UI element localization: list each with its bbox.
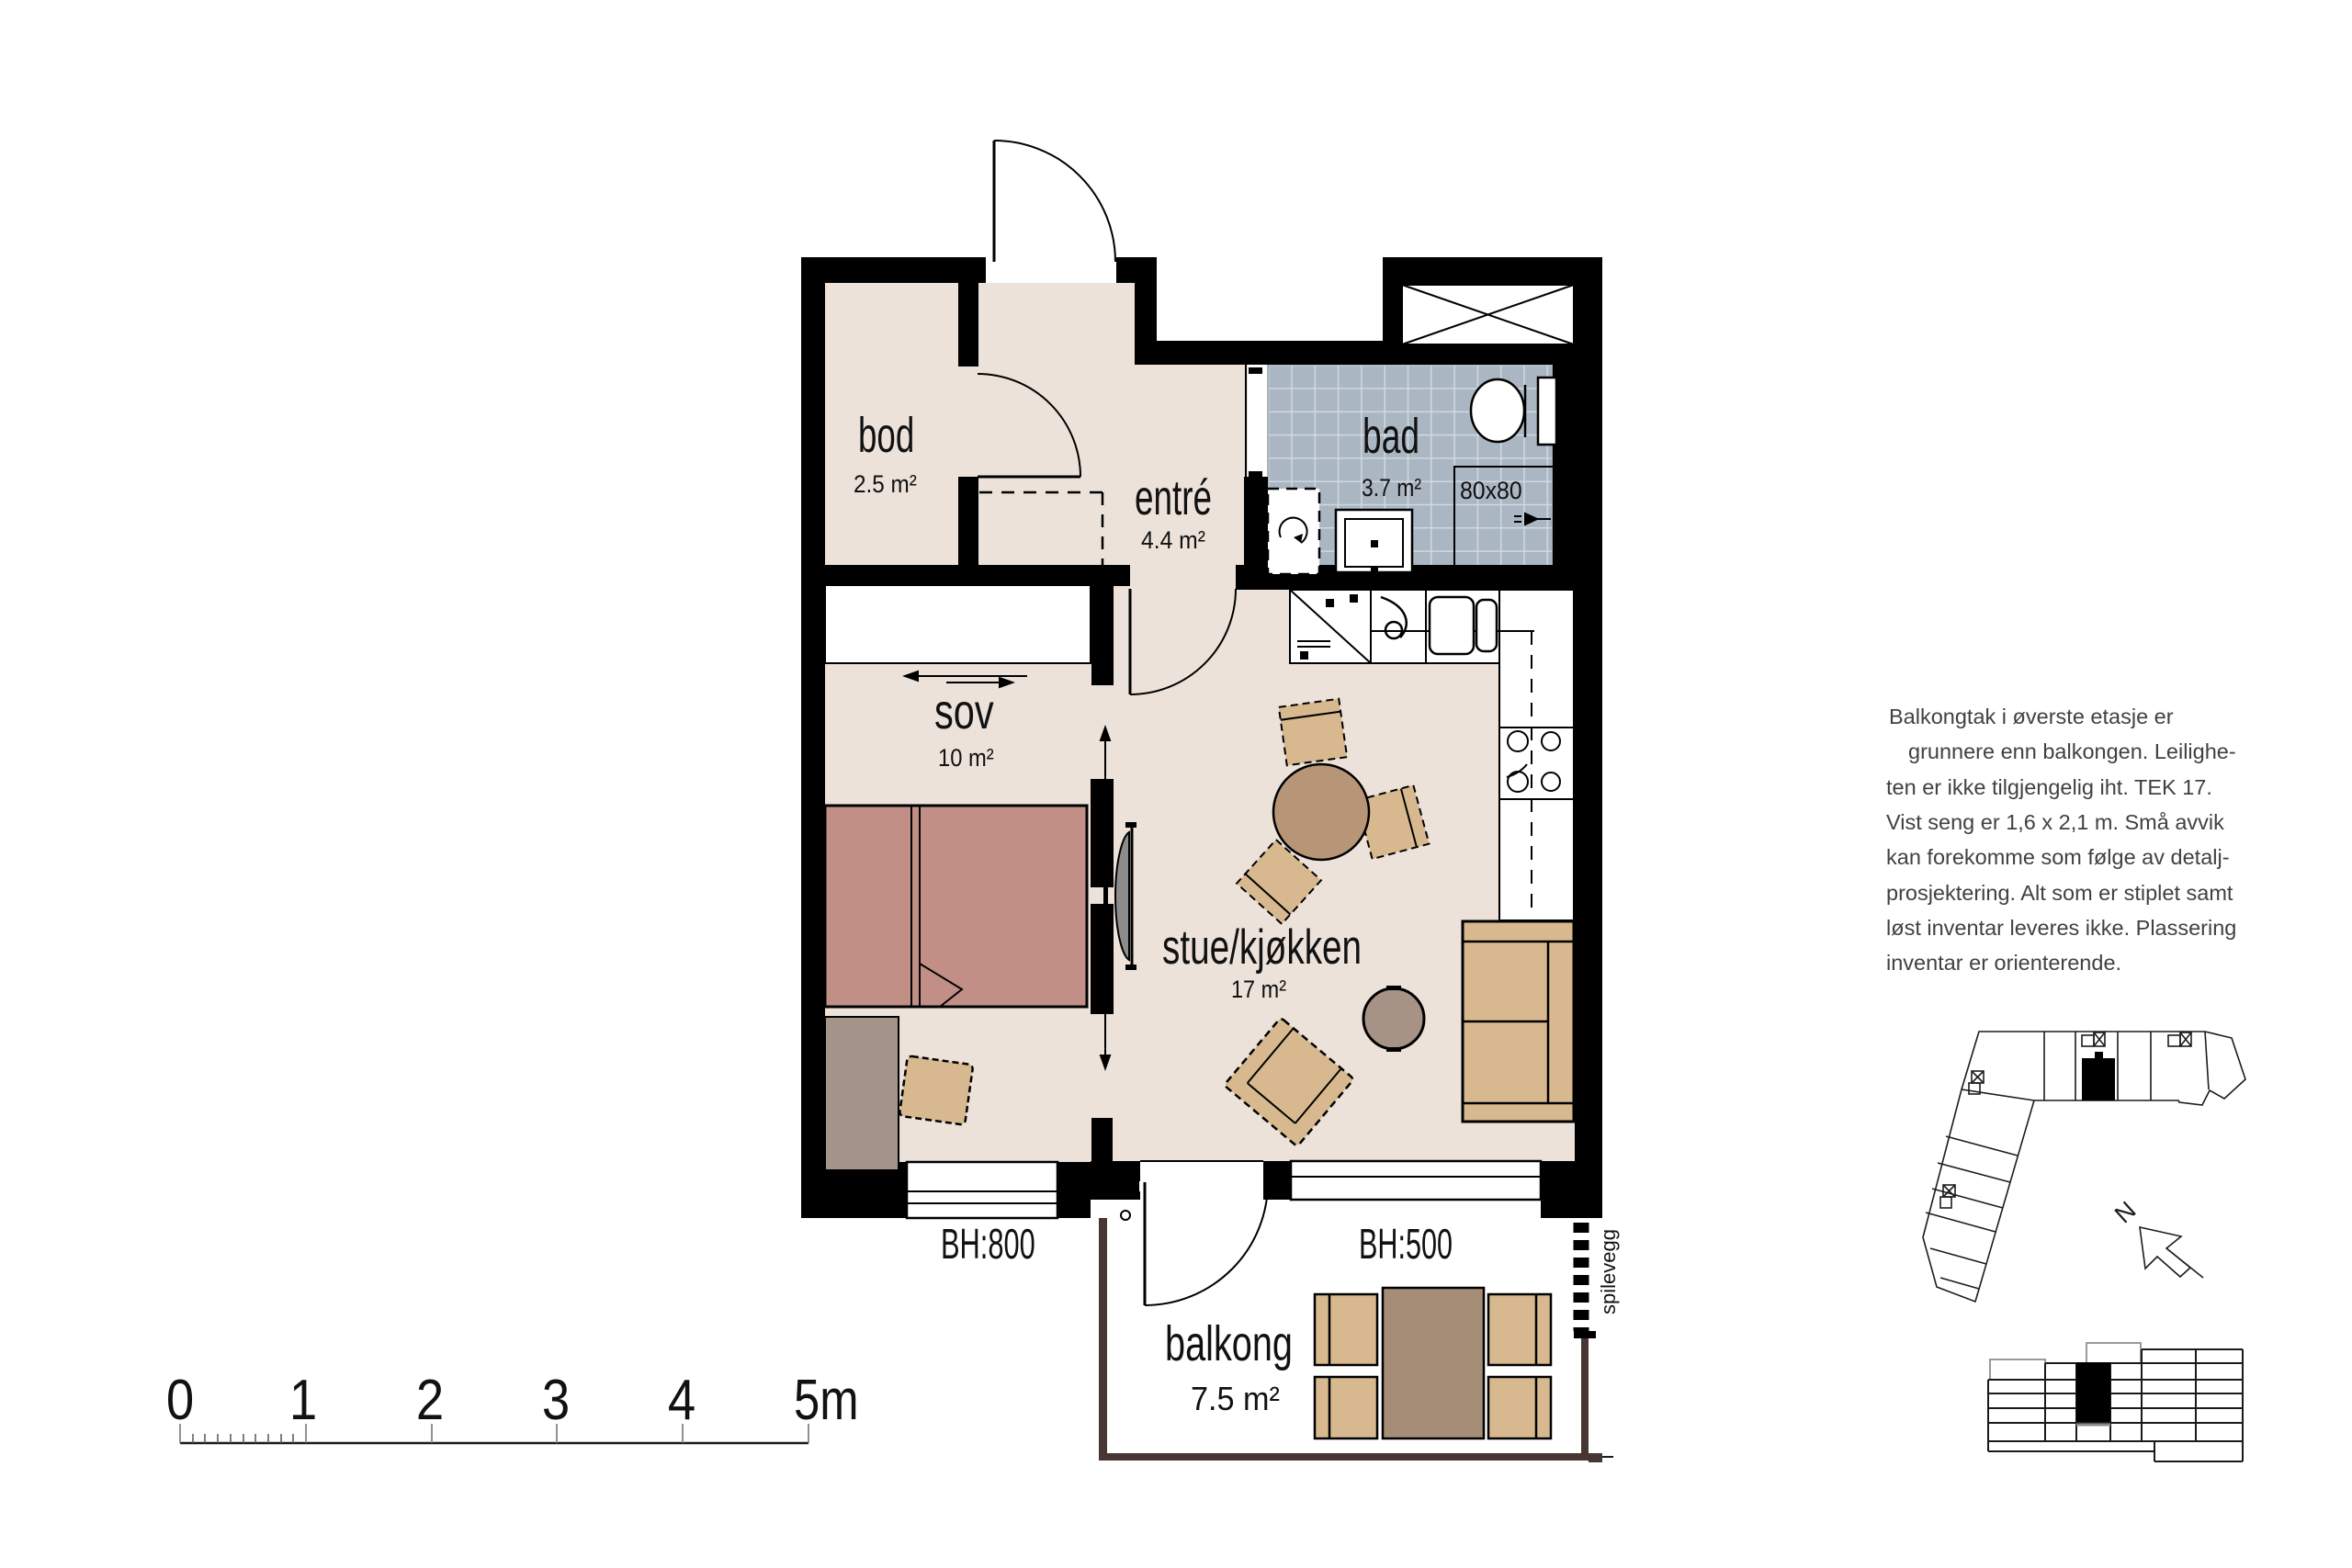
svg-text:balkong: balkong xyxy=(1165,1316,1293,1371)
svg-text:0: 0 xyxy=(166,1369,194,1432)
svg-text:5m: 5m xyxy=(794,1369,859,1432)
svg-text:2.5 m²: 2.5 m² xyxy=(854,471,917,498)
svg-text:sov: sov xyxy=(934,684,994,740)
svg-text:prosjektering. Alt som er stip: prosjektering. Alt som er stiplet samt xyxy=(1886,881,2233,905)
svg-text:10 m²: 10 m² xyxy=(938,745,994,773)
svg-text:17 m²: 17 m² xyxy=(1231,976,1286,1004)
svg-text:bad: bad xyxy=(1363,408,1419,464)
svg-text:stue/kjøkken: stue/kjøkken xyxy=(1162,919,1362,974)
svg-text:ten er ikke tilgjengelig iht.: ten er ikke tilgjengelig iht. TEK 17. xyxy=(1886,775,2212,799)
svg-text:grunnere enn balkongen. Leilig: grunnere enn balkongen. Leilighe- xyxy=(1908,739,2236,763)
svg-text:4: 4 xyxy=(668,1369,695,1432)
svg-text:2: 2 xyxy=(416,1369,444,1432)
svg-text:3.7 m²: 3.7 m² xyxy=(1362,474,1421,502)
svg-text:Vist seng er 1,6 x 2,1 m. Små: Vist seng er 1,6 x 2,1 m. Små avvik xyxy=(1886,810,2224,834)
svg-text:BH:500: BH:500 xyxy=(1359,1222,1453,1269)
svg-text:løst inventar leveres ikke. Pl: løst inventar leveres ikke. Plassering xyxy=(1886,916,2236,940)
svg-text:entré: entré xyxy=(1135,469,1212,525)
svg-text:1: 1 xyxy=(289,1369,317,1432)
svg-text:80x80: 80x80 xyxy=(1460,478,1522,504)
svg-text:Balkongtak i øverste etasje er: Balkongtak i øverste etasje er xyxy=(1889,705,2174,728)
svg-text:3: 3 xyxy=(542,1369,570,1432)
svg-text:4.4 m²: 4.4 m² xyxy=(1141,527,1205,554)
svg-text:kan forekomme som følge av det: kan forekomme som følge av detalj- xyxy=(1886,845,2230,869)
svg-text:spilevegg: spilevegg xyxy=(1597,1229,1620,1314)
svg-text:bod: bod xyxy=(858,407,914,463)
svg-text:BH:800: BH:800 xyxy=(941,1222,1035,1269)
svg-text:7.5 m²: 7.5 m² xyxy=(1191,1381,1280,1417)
svg-text:inventar er orienterende.: inventar er orienterende. xyxy=(1886,951,2121,975)
